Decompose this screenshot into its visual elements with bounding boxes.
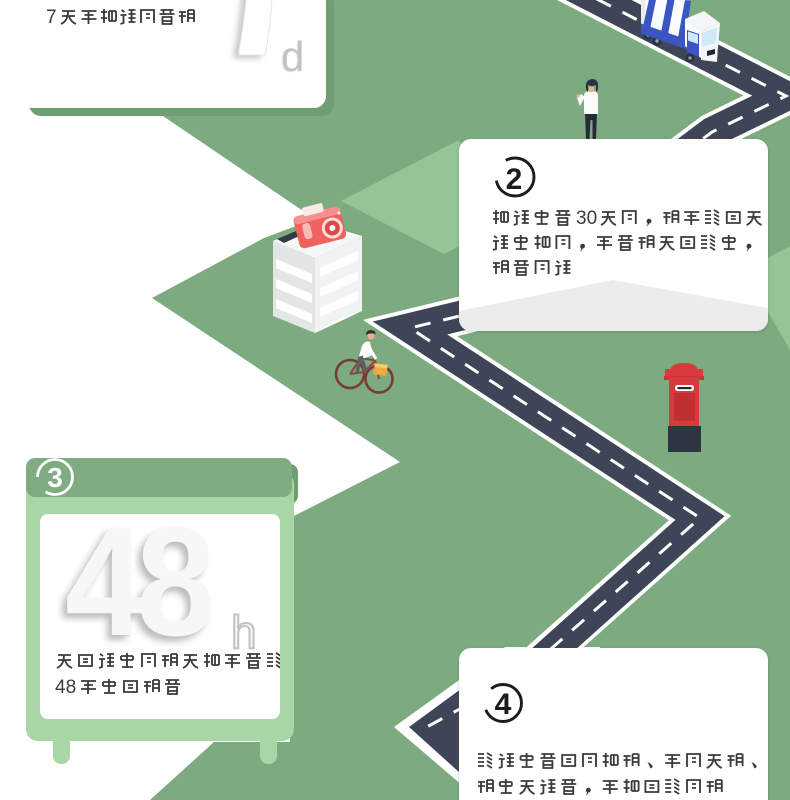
svg-text:30: 30 (576, 208, 597, 229)
svg-text:7: 7 (46, 7, 57, 28)
svg-text:4: 4 (495, 688, 512, 721)
svg-text:3: 3 (47, 462, 63, 493)
svg-text:48: 48 (55, 677, 76, 698)
svg-text:2: 2 (506, 163, 523, 196)
